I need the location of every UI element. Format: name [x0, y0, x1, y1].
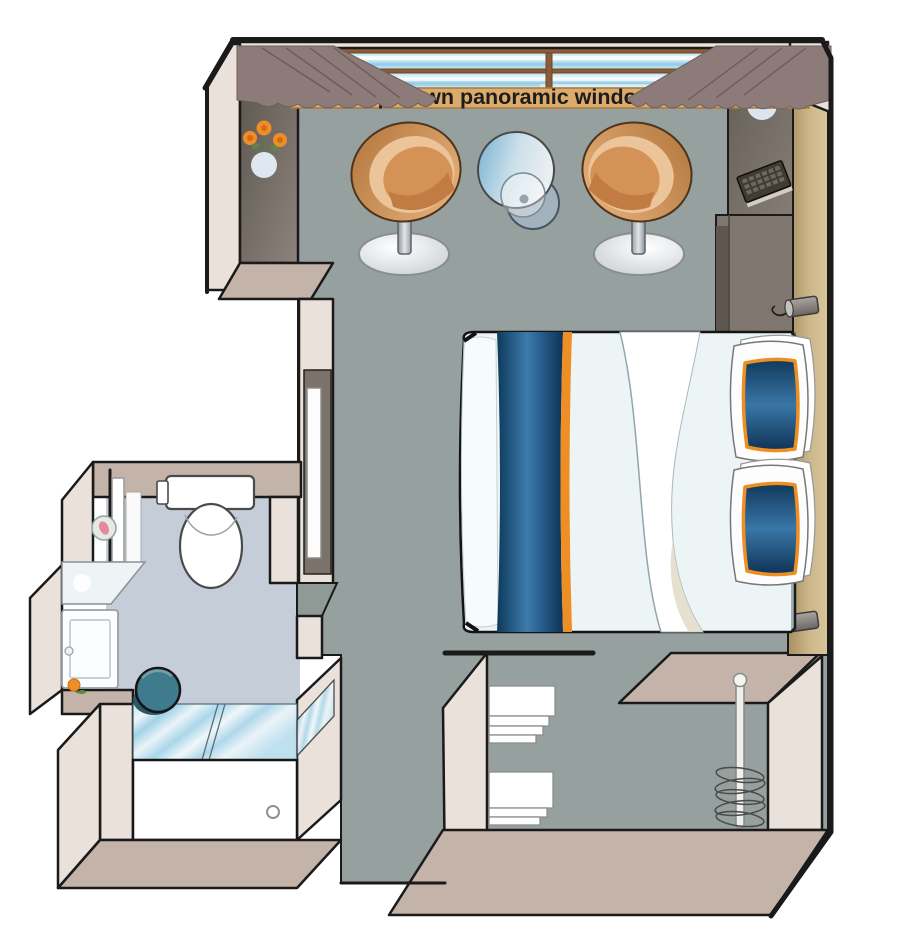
- entry-door: [307, 388, 321, 558]
- pillow-bottom: [730, 459, 815, 585]
- bathroom-wall-right: [270, 497, 298, 583]
- vanity-outer-wall: [30, 565, 62, 714]
- shower-drain: [267, 806, 279, 818]
- shower-bottom-wall: [58, 840, 341, 888]
- vanity-cabinet: [62, 610, 118, 688]
- shower-wall-left: [100, 704, 133, 840]
- floorplan-svg: Drop-down panoramic windows: [0, 0, 900, 946]
- bottom-wall: [389, 830, 828, 915]
- bathroom-mirror: [92, 516, 116, 540]
- bathroom-wall-left: [62, 462, 93, 565]
- bed-runner: [497, 332, 563, 632]
- shower-tray: [133, 760, 297, 840]
- bathroom-door-panel-2: [126, 492, 141, 562]
- pillow-top: [730, 335, 815, 461]
- bathroom-step-face: [297, 616, 322, 658]
- window-mullion: [546, 53, 552, 88]
- cabin-floorplan: Drop-down panoramic windows: [0, 0, 900, 946]
- double-bed: [460, 332, 815, 632]
